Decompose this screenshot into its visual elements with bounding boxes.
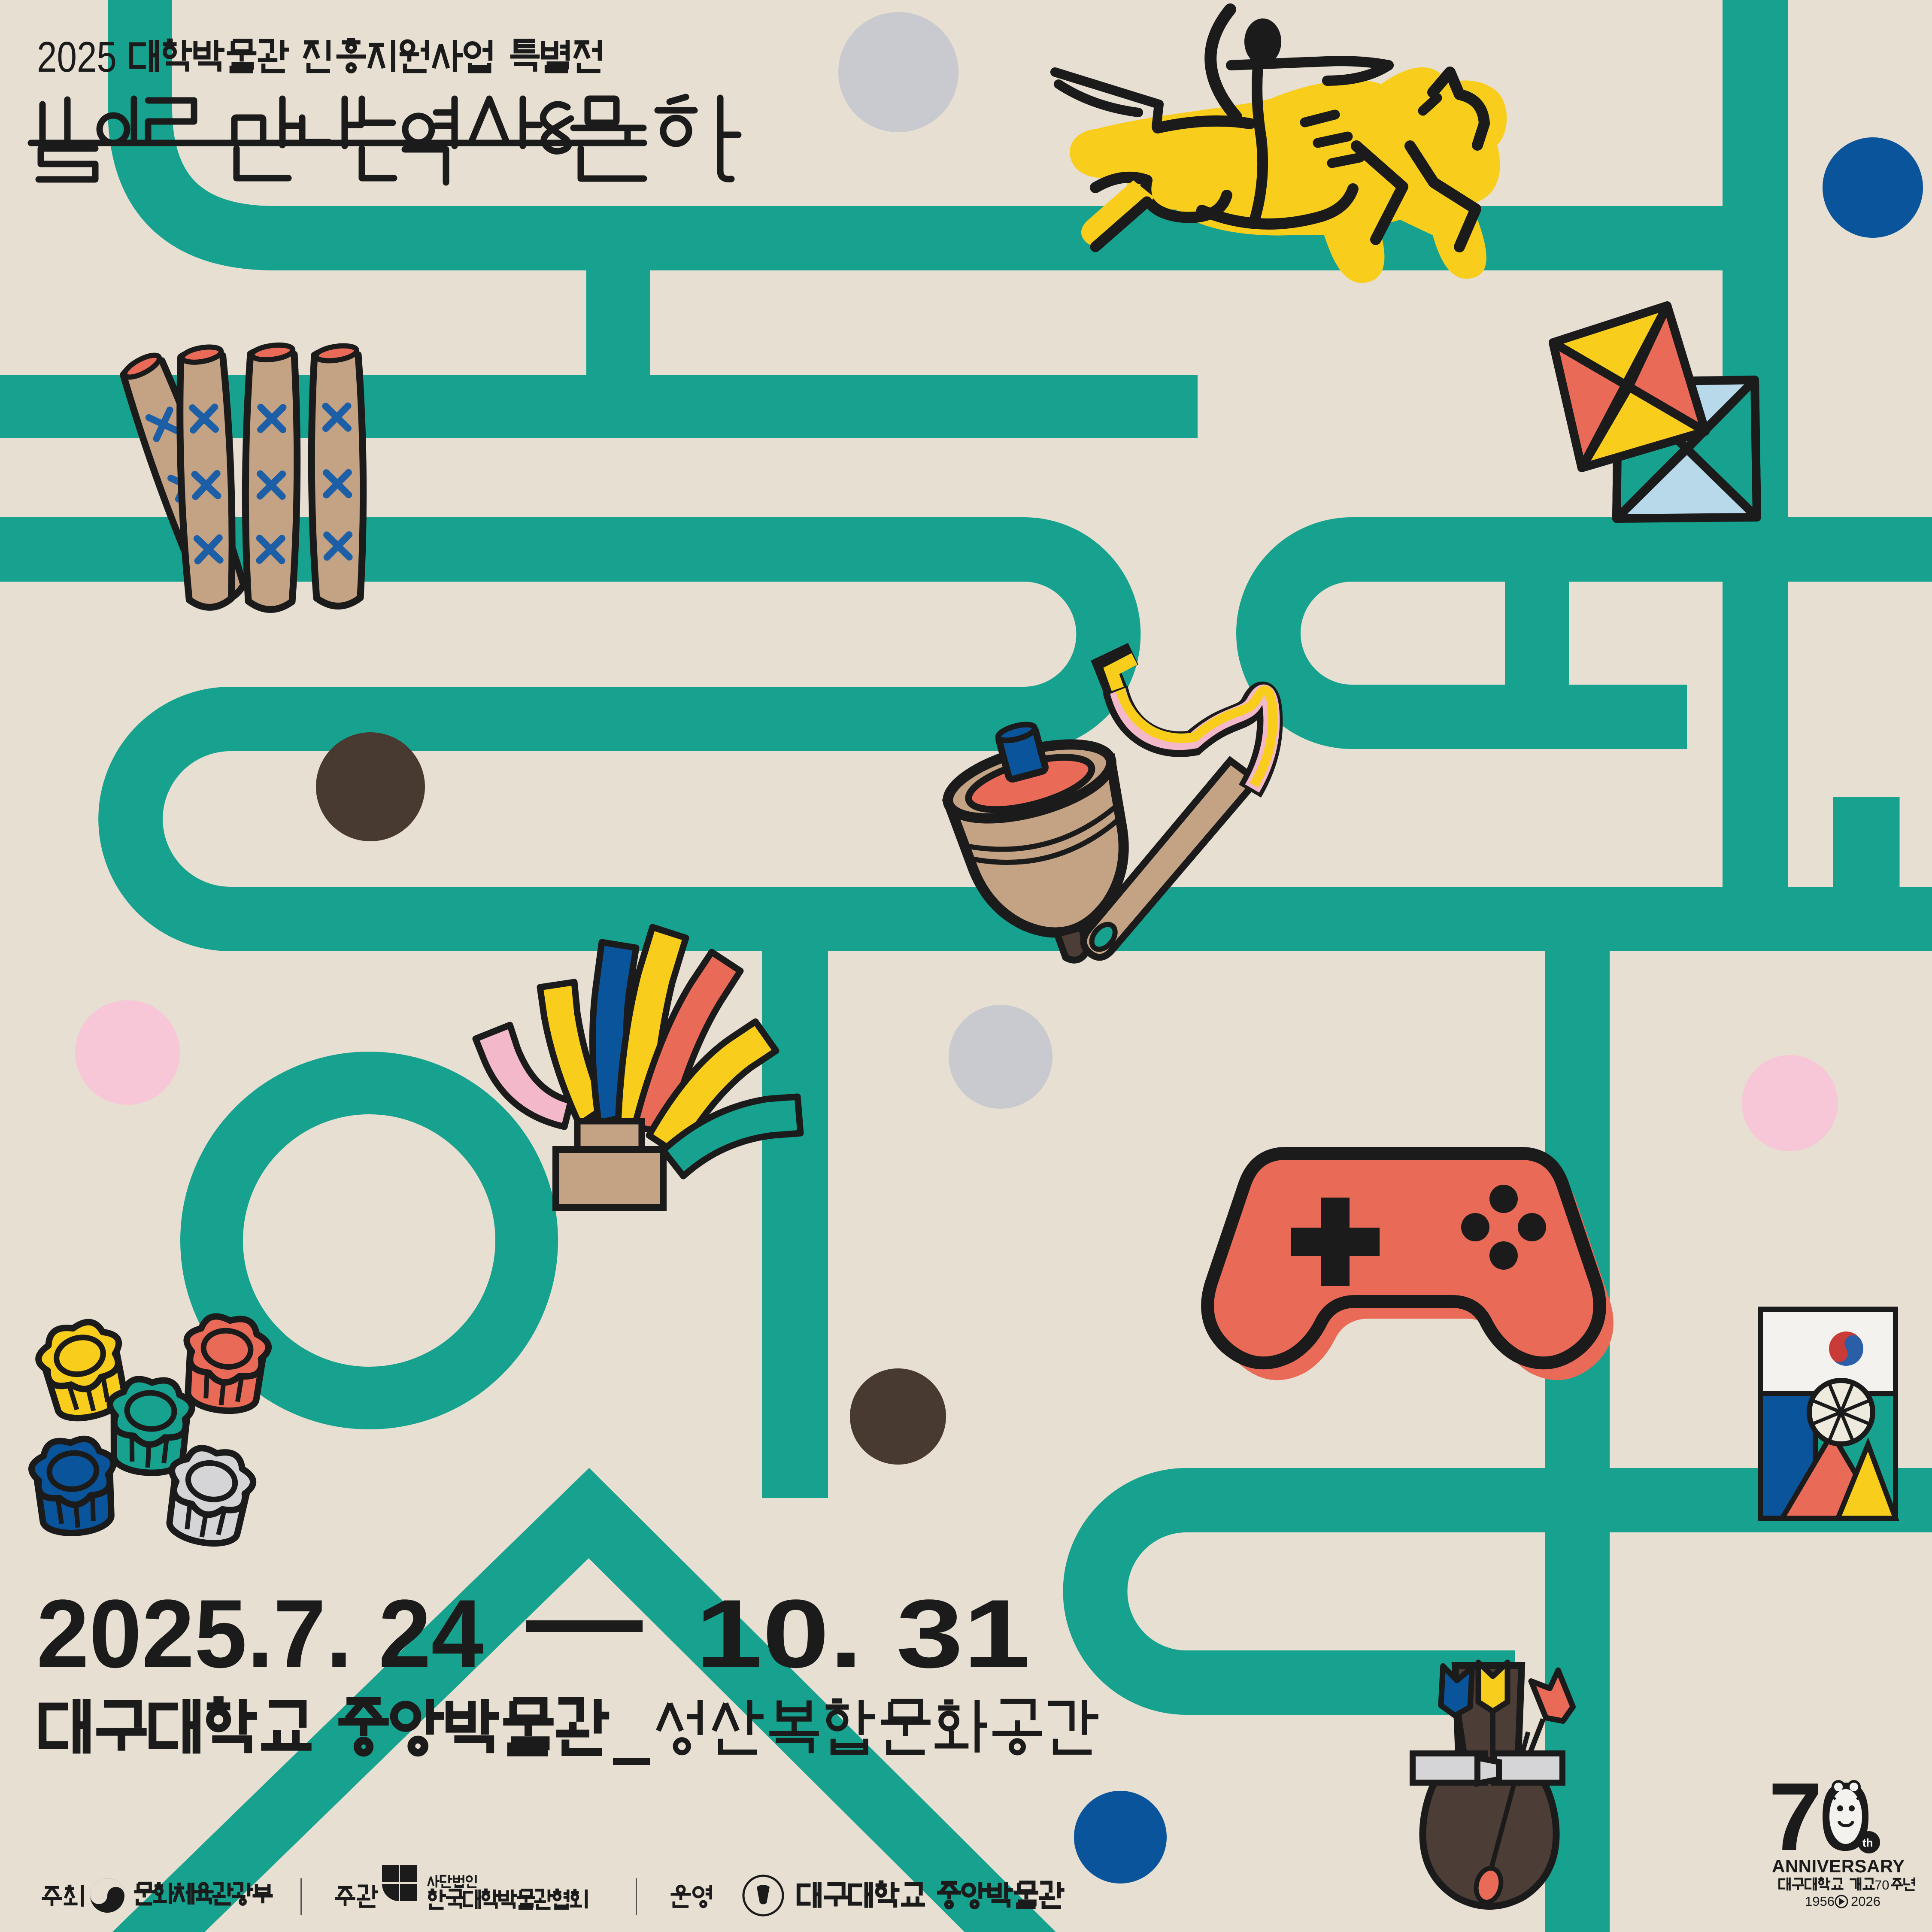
svg-text:2025.7. 24: 2025.7. 24 <box>36 1579 484 1688</box>
svg-text:10. 31: 10. 31 <box>695 1579 1030 1688</box>
svg-text:70: 70 <box>1874 1877 1889 1893</box>
svg-text:1956: 1956 <box>1805 1894 1835 1909</box>
svg-text:2026: 2026 <box>1851 1894 1880 1909</box>
svg-text:2025: 2025 <box>37 33 117 81</box>
svg-text:th: th <box>1862 1836 1873 1849</box>
svg-text:ANNIVERSARY: ANNIVERSARY <box>1772 1856 1905 1876</box>
